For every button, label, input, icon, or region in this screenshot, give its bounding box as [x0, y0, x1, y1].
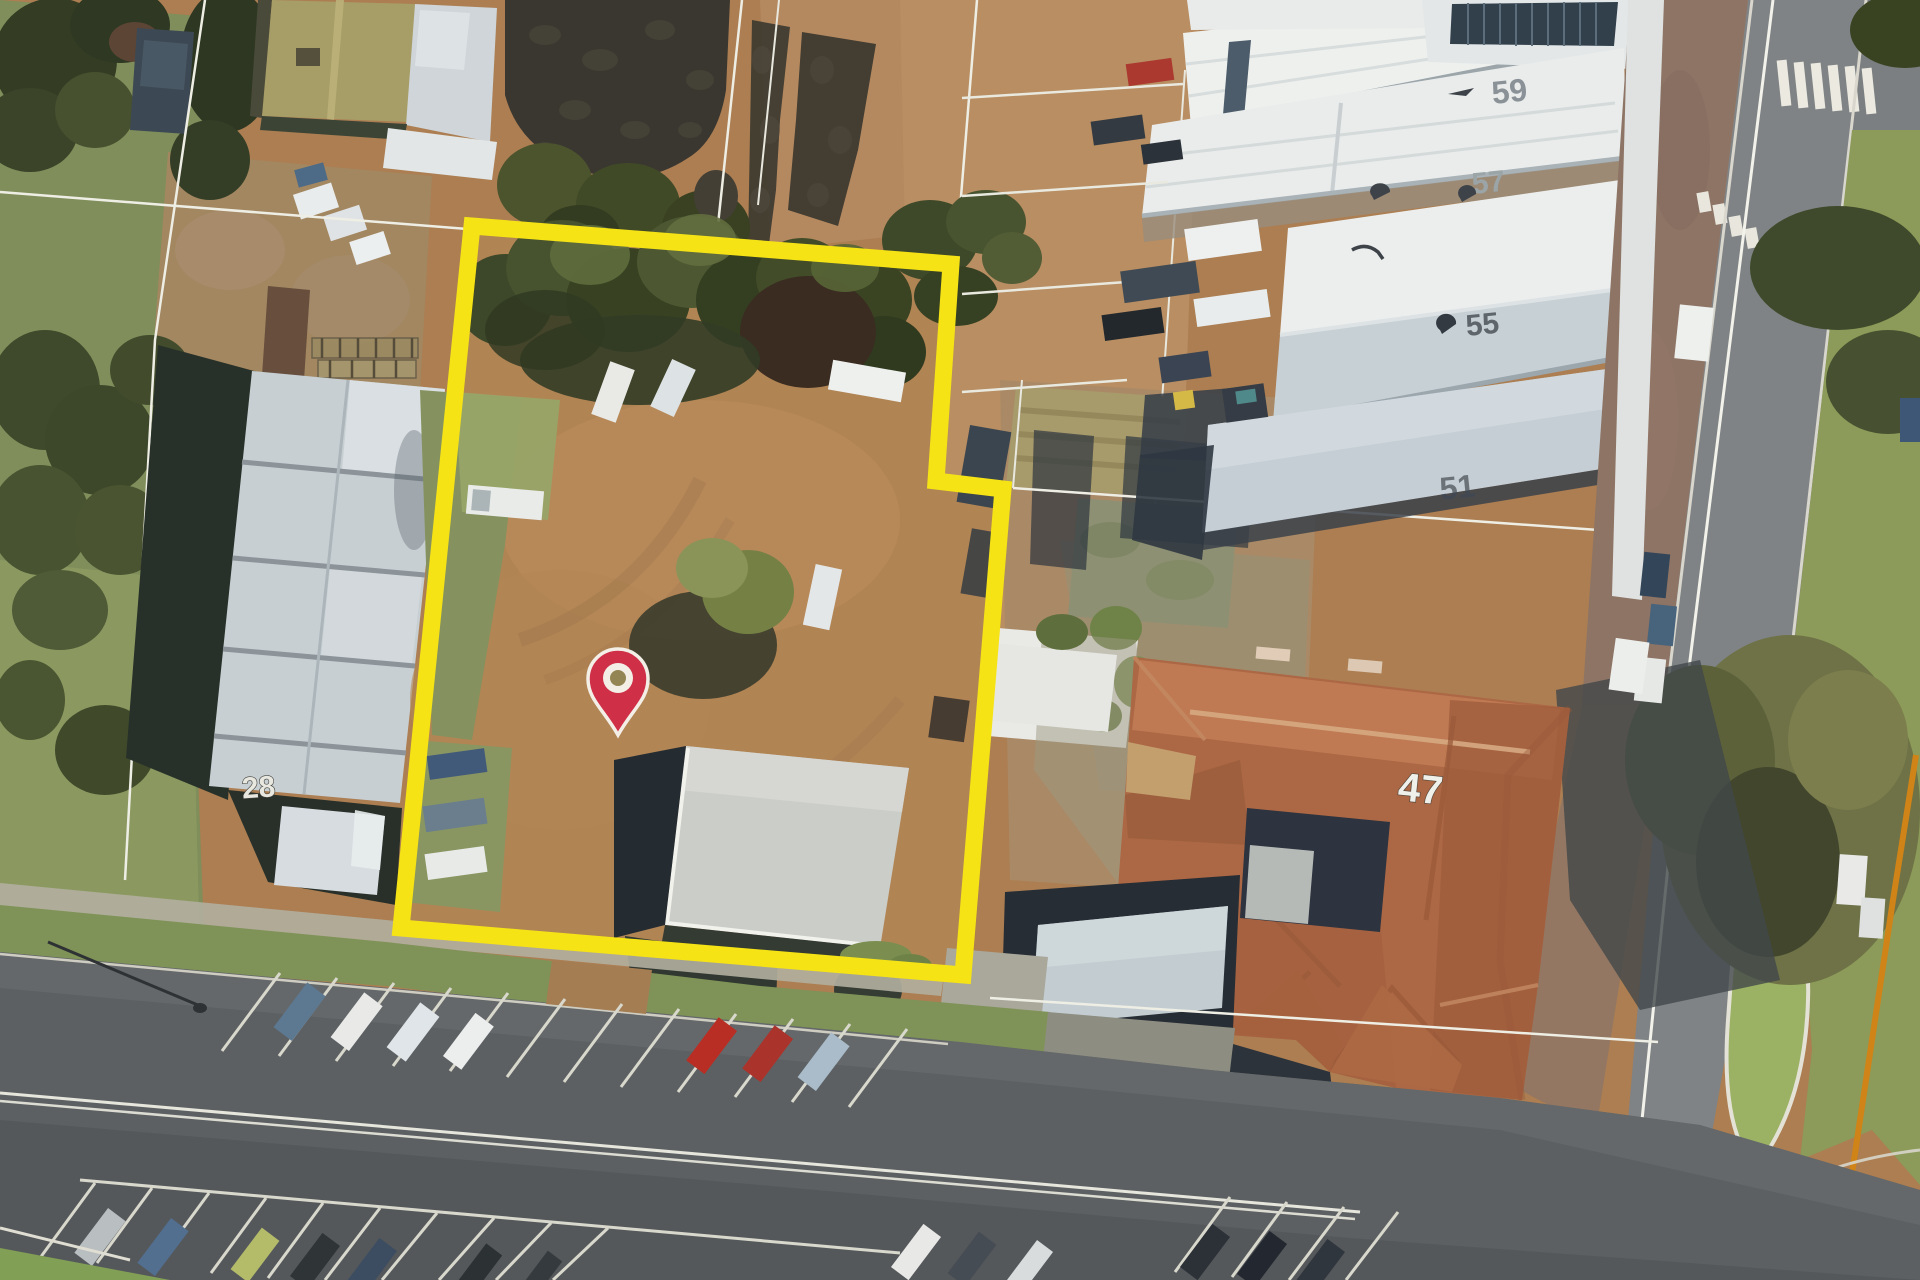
svg-text:55: 55 [1464, 307, 1501, 343]
svg-text:57: 57 [1470, 165, 1507, 201]
svg-text:59: 59 [1490, 71, 1529, 111]
svg-text:28: 28 [241, 770, 277, 805]
svg-text:47: 47 [1396, 765, 1445, 813]
